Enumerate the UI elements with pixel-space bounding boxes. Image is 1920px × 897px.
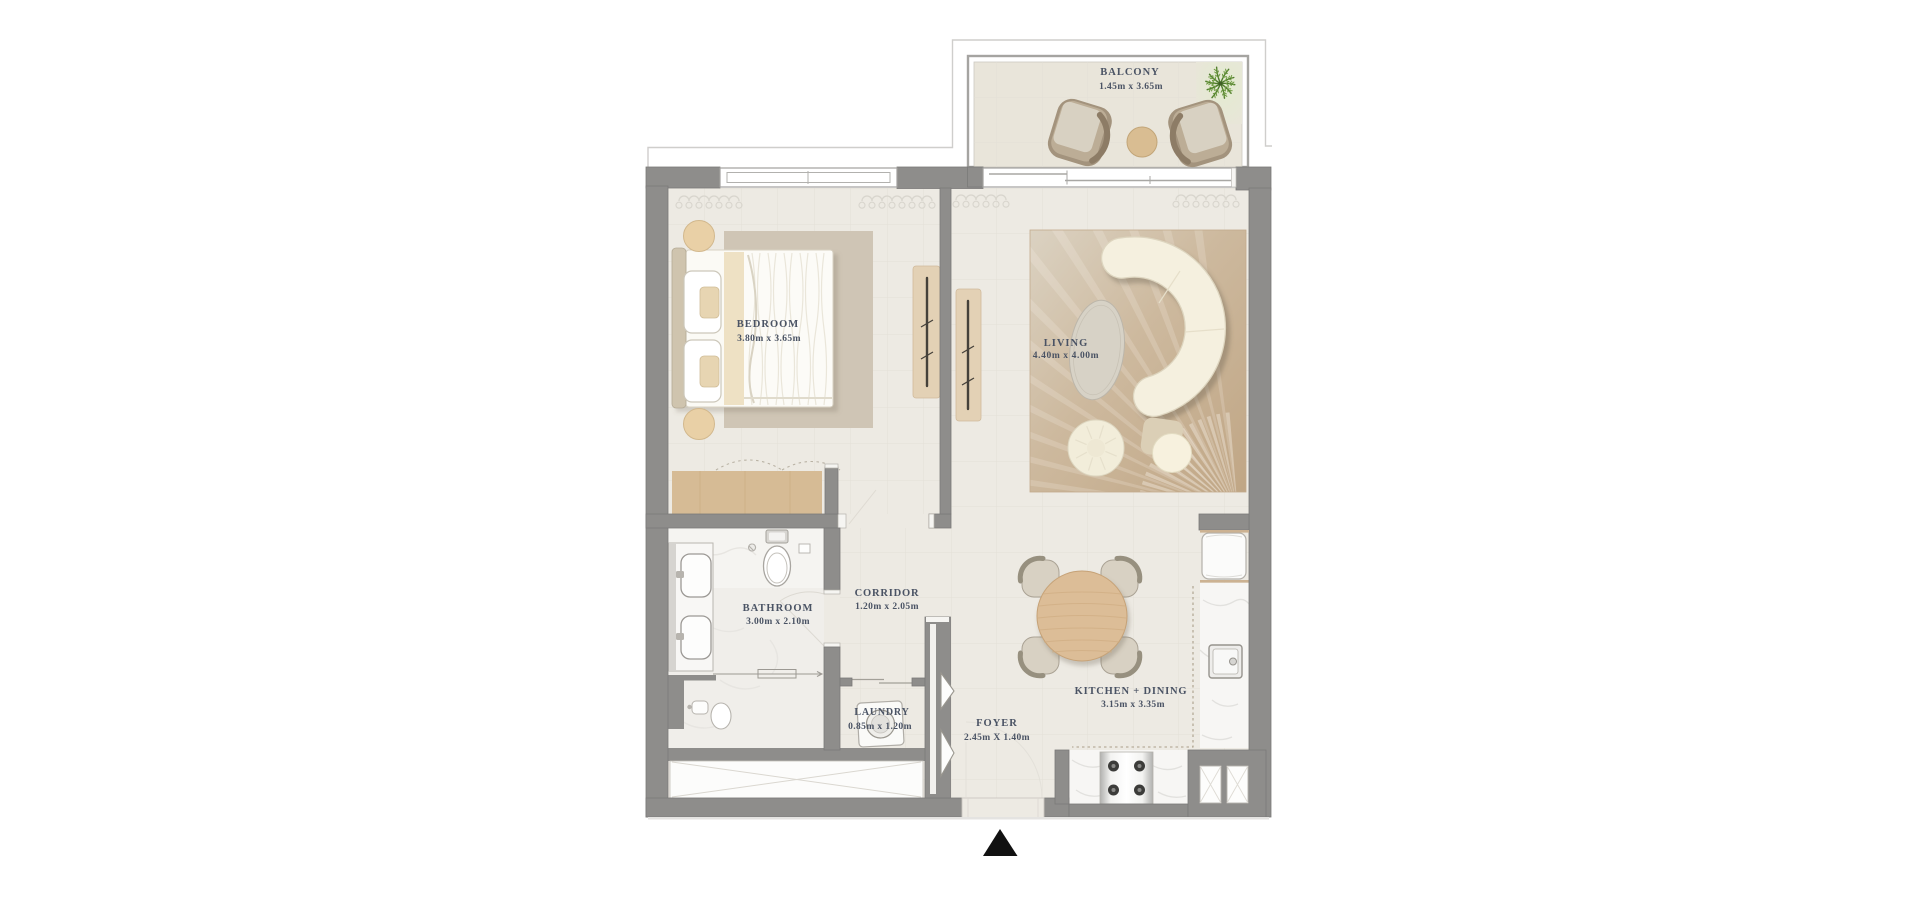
svg-text:2.45m X 1.40m: 2.45m X 1.40m — [964, 733, 1030, 743]
svg-text:CORRIDOR: CORRIDOR — [855, 588, 920, 599]
svg-text:LIVING: LIVING — [1044, 338, 1089, 349]
svg-text:LAUNDRY: LAUNDRY — [854, 707, 909, 718]
svg-text:0.85m x 1.20m: 0.85m x 1.20m — [848, 722, 912, 732]
svg-text:3.00m x 2.10m: 3.00m x 2.10m — [746, 617, 810, 627]
svg-text:3.15m x 3.35m: 3.15m x 3.35m — [1101, 700, 1165, 710]
svg-text:4.40m x 4.00m: 4.40m x 4.00m — [1033, 351, 1099, 361]
svg-text:3.80m x 3.65m: 3.80m x 3.65m — [737, 334, 801, 344]
svg-text:BALCONY: BALCONY — [1100, 67, 1160, 78]
svg-text:1.45m x 3.65m: 1.45m x 3.65m — [1099, 82, 1163, 92]
svg-text:BEDROOM: BEDROOM — [737, 319, 799, 330]
svg-text:1.20m x 2.05m: 1.20m x 2.05m — [855, 602, 919, 612]
svg-text:FOYER: FOYER — [976, 718, 1018, 729]
svg-text:BATHROOM: BATHROOM — [743, 603, 814, 614]
svg-text:KITCHEN + DINING: KITCHEN + DINING — [1075, 686, 1188, 697]
